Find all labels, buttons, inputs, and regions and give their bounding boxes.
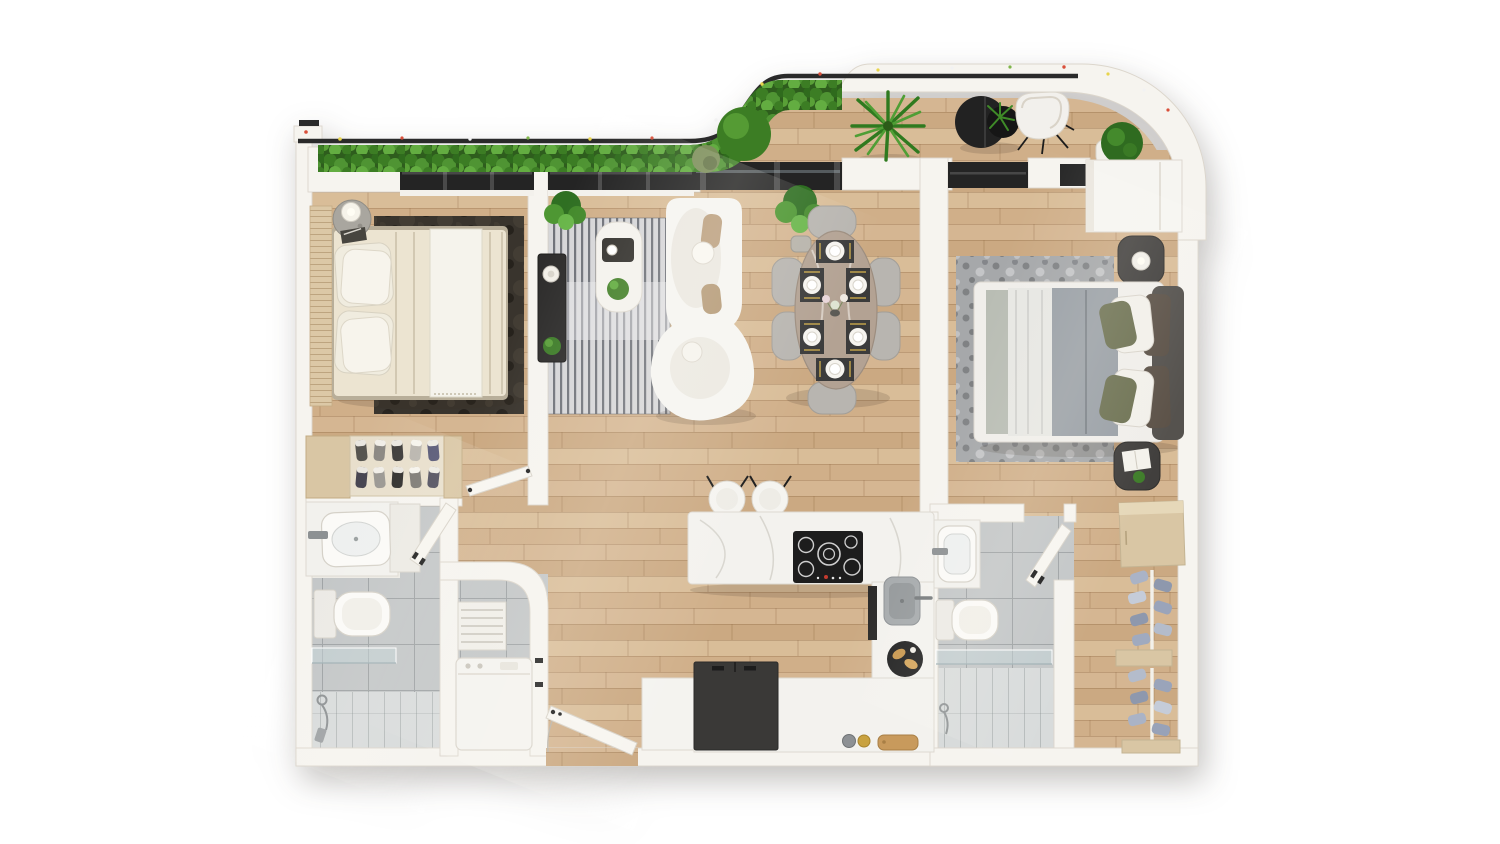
bathroom-2-top-wall — [930, 504, 1024, 522]
toilet-1 — [314, 590, 390, 638]
bathroom-1-east-wall — [440, 498, 458, 756]
pillow-stack-upper — [334, 242, 394, 308]
nightstand-with-lamp — [1118, 236, 1164, 284]
washing-machine — [456, 658, 532, 750]
place-setting — [816, 358, 854, 381]
olive-bush-shade — [703, 156, 717, 170]
sofa-cushion-round — [692, 242, 714, 264]
shoe-rack — [306, 436, 462, 498]
cutting-board — [878, 735, 918, 750]
bed-2 — [974, 282, 1184, 442]
canister — [843, 735, 856, 748]
floor-plan-stage — [0, 0, 1500, 844]
bathroom-2-east-wall — [1054, 580, 1074, 752]
curved-sofa — [651, 198, 754, 421]
slatted-headboard — [310, 206, 332, 406]
duvet-runner — [1008, 288, 1052, 436]
coffee-table — [596, 222, 642, 312]
console-plant — [543, 337, 561, 355]
shower-screen-2 — [936, 650, 1052, 664]
duvet-sage — [986, 290, 1008, 434]
base-cabinet — [642, 678, 694, 750]
place-setting — [846, 268, 870, 302]
nightstand-with-book — [1114, 442, 1160, 490]
refrigerator — [694, 662, 778, 750]
bedroom-2-west-wall — [920, 158, 948, 512]
kitchen-island — [688, 512, 934, 584]
bathroom-2-shower-floor — [936, 668, 1058, 748]
place-setting — [800, 268, 824, 302]
place-setting — [800, 320, 824, 354]
pillow-stack-lower — [334, 310, 394, 376]
gold-jar — [858, 735, 870, 747]
pastry-tray — [887, 641, 923, 677]
bathroom-1-shower-floor — [306, 692, 458, 752]
sofa-cushion-bulb — [682, 342, 702, 362]
tv-console — [538, 254, 566, 362]
wardrobe — [1086, 160, 1182, 232]
coffee-cup — [607, 245, 617, 255]
table-plant — [607, 278, 629, 300]
cooktop — [793, 531, 863, 583]
toilet-2 — [936, 600, 998, 640]
floor-plan-svg — [0, 0, 1500, 844]
closet-shelf-board — [1116, 650, 1172, 666]
oven-front — [868, 586, 877, 640]
place-setting — [816, 240, 854, 263]
drying-rack — [458, 602, 506, 650]
faucet-2 — [932, 548, 948, 555]
glass-shelf — [312, 648, 396, 663]
window-bedroom-2 — [948, 162, 1086, 188]
faucet-1 — [308, 531, 328, 539]
small-plant — [1133, 471, 1145, 483]
dresser — [1119, 501, 1185, 567]
sink-2 — [932, 526, 976, 582]
sink-1 — [321, 511, 391, 567]
place-setting — [846, 320, 870, 354]
bed-1-runner — [430, 229, 482, 397]
right-outer-wall — [1178, 186, 1198, 766]
balcony-corner-tick — [299, 120, 319, 126]
topiary-highlight — [723, 113, 749, 139]
closet-bottom-board — [1122, 740, 1180, 753]
bathroom-2-top-stub — [1064, 504, 1076, 522]
